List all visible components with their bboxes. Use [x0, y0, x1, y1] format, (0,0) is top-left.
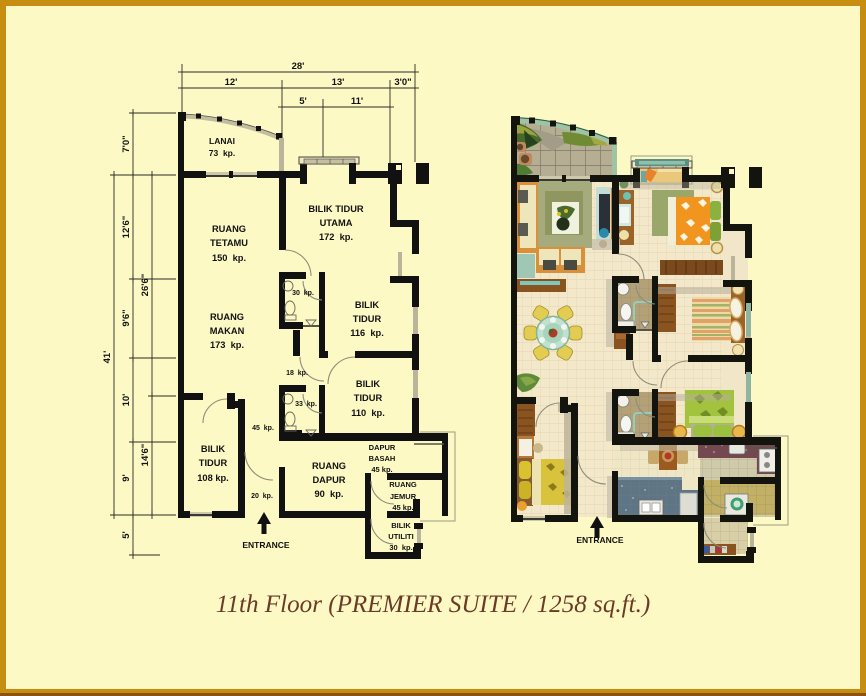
svg-text:TIDUR: TIDUR — [353, 314, 382, 324]
svg-text:30 kp.: 30 kp. — [292, 290, 314, 297]
svg-text:UTILITI: UTILITI — [388, 532, 413, 541]
svg-text:41': 41' — [102, 351, 113, 364]
svg-text:RUANG: RUANG — [210, 312, 244, 322]
svg-text:26'6": 26'6" — [140, 274, 151, 297]
svg-text:173 kp.: 173 kp. — [210, 340, 244, 350]
svg-text:9'6": 9'6" — [121, 309, 132, 326]
svg-text:11': 11' — [351, 96, 363, 107]
svg-text:45 kp.: 45 kp. — [392, 503, 413, 512]
svg-text:BILIK: BILIK — [355, 300, 380, 310]
svg-text:LANAI: LANAI — [209, 136, 235, 146]
svg-text:RUANG: RUANG — [389, 480, 417, 489]
svg-text:DAPUR: DAPUR — [369, 443, 396, 452]
svg-text:RUANG: RUANG — [212, 224, 246, 234]
svg-text:7'0": 7'0" — [121, 135, 132, 152]
svg-text:90 kp.: 90 kp. — [315, 489, 344, 499]
svg-text:RUANG: RUANG — [312, 461, 346, 471]
svg-text:18 kp.: 18 kp. — [286, 370, 308, 377]
svg-text:DAPUR: DAPUR — [312, 475, 345, 485]
svg-text:28': 28' — [292, 61, 305, 72]
svg-text:9': 9' — [121, 474, 132, 482]
svg-text:45 kp.: 45 kp. — [371, 465, 392, 474]
svg-text:116 kp.: 116 kp. — [350, 328, 384, 338]
svg-text:73 kp.: 73 kp. — [209, 148, 235, 158]
svg-text:12': 12' — [225, 77, 238, 88]
svg-text:150 kp.: 150 kp. — [212, 253, 246, 263]
svg-text:10': 10' — [121, 394, 132, 407]
svg-text:12'6": 12'6" — [121, 216, 132, 239]
svg-text:110 kp.: 110 kp. — [351, 408, 385, 418]
svg-text:11th Floor (PREMIER SUITE / 12: 11th Floor (PREMIER SUITE / 1258 sq.ft.) — [216, 591, 650, 618]
svg-text:30 kp.: 30 kp. — [389, 543, 412, 552]
svg-text:ENTRANCE: ENTRANCE — [576, 535, 624, 545]
svg-text:5': 5' — [299, 96, 307, 107]
svg-text:UTAMA: UTAMA — [320, 218, 353, 228]
svg-text:172 kp.: 172 kp. — [319, 232, 353, 242]
svg-text:14'6": 14'6" — [140, 444, 151, 467]
svg-text:TETAMU: TETAMU — [210, 238, 248, 248]
svg-text:JEMUR: JEMUR — [390, 492, 417, 501]
svg-text:3'0": 3'0" — [394, 77, 411, 88]
svg-text:ENTRANCE: ENTRANCE — [242, 540, 290, 550]
svg-text:5': 5' — [121, 531, 132, 539]
svg-text:BASAH: BASAH — [369, 454, 396, 463]
svg-text:BILIK: BILIK — [391, 521, 411, 530]
svg-text:BILIK TIDUR: BILIK TIDUR — [308, 204, 364, 214]
svg-text:20 kp.: 20 kp. — [251, 493, 273, 500]
svg-text:TIDUR: TIDUR — [354, 393, 383, 403]
svg-text:45 kp.: 45 kp. — [252, 425, 274, 432]
svg-text:33 kp.: 33 kp. — [295, 401, 317, 408]
svg-text:BILIK: BILIK — [201, 444, 226, 454]
svg-text:TIDUR: TIDUR — [199, 458, 228, 468]
svg-text:MAKAN: MAKAN — [210, 326, 245, 336]
svg-text:BILIK: BILIK — [356, 379, 381, 389]
svg-text:108 kp.: 108 kp. — [197, 473, 229, 483]
svg-text:13': 13' — [332, 77, 345, 88]
